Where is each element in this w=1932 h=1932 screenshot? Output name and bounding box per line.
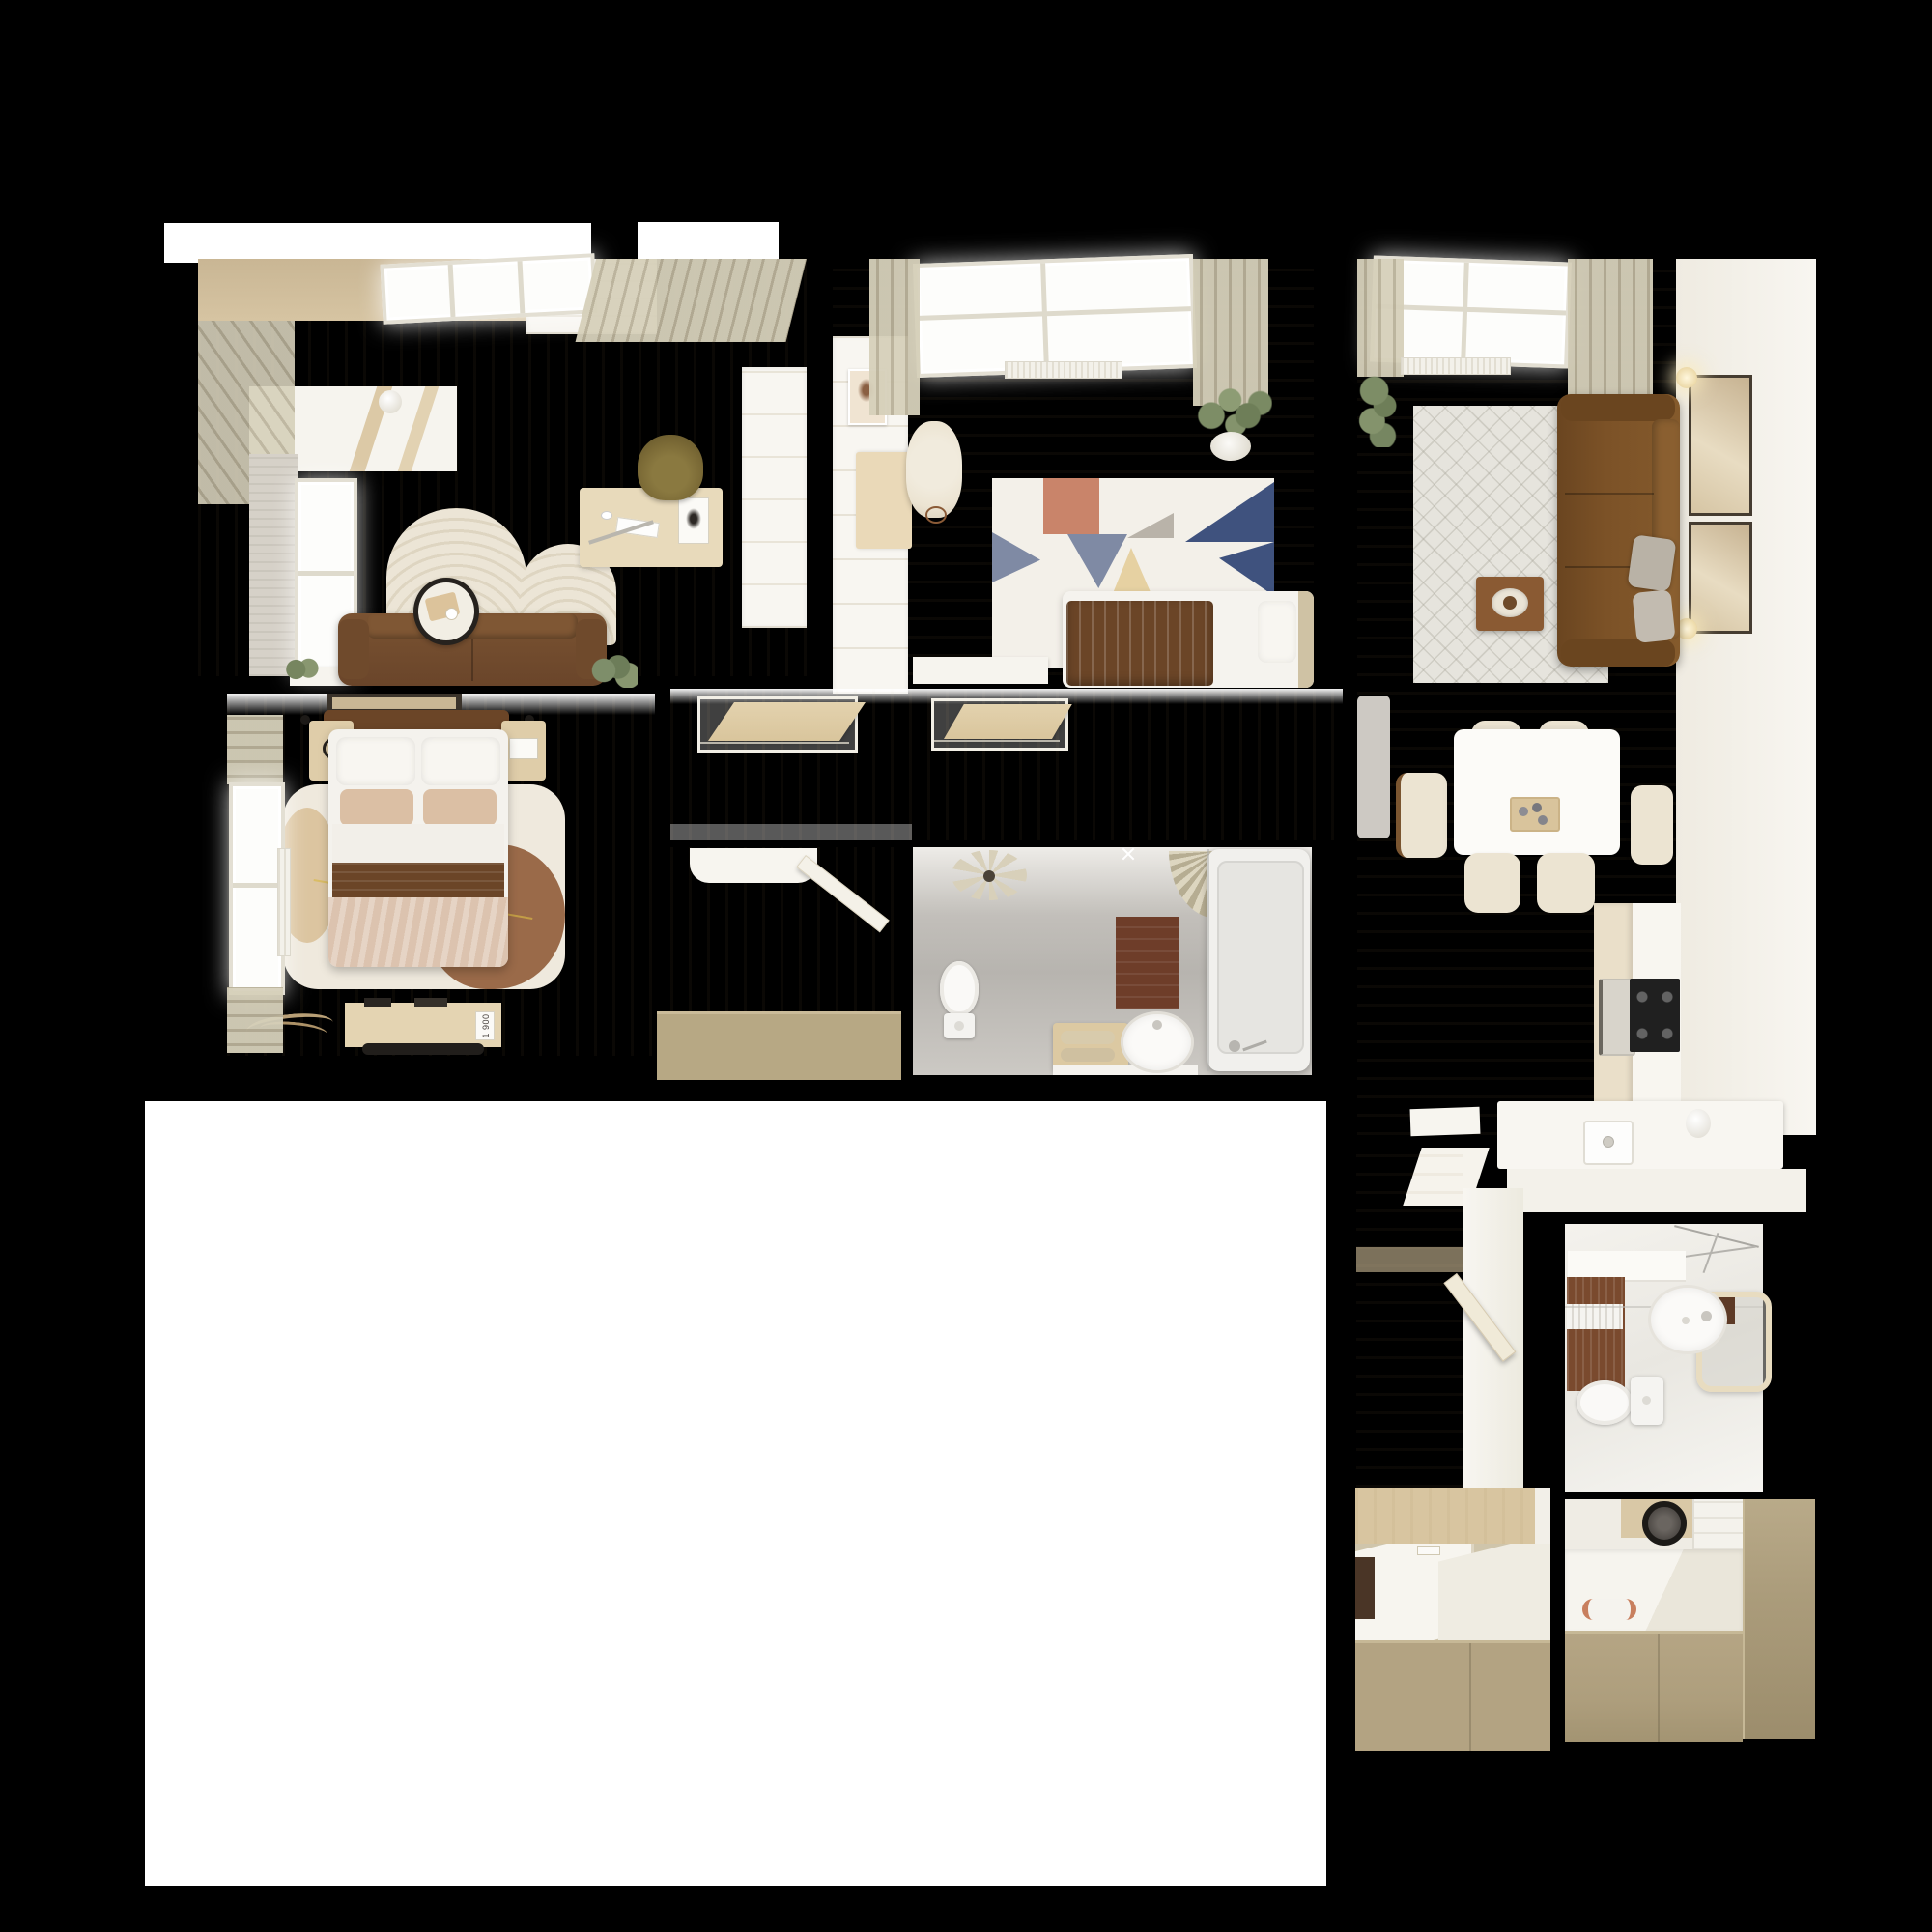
window-mullion (448, 265, 456, 317)
dining-chair-left (1396, 773, 1447, 858)
bench-item (414, 998, 447, 1007)
shower-sketch-line (1681, 1246, 1756, 1259)
living-side-table (1476, 577, 1544, 631)
chair-base (925, 506, 947, 524)
tray-cup (1532, 803, 1542, 812)
bath-brown-mat (1116, 917, 1179, 1009)
bath-brown-panel (1567, 1277, 1625, 1391)
bench-card: 1 900 (475, 1011, 495, 1040)
office-coffee-table (413, 578, 479, 645)
laundry-cabinet-white (1692, 1499, 1745, 1549)
entry-khaki-base (1355, 1640, 1550, 1751)
room-entry-wardrobe (1355, 1488, 1550, 1748)
toilet-bowl (940, 961, 979, 1015)
kitchen-floor-band (1507, 1169, 1806, 1212)
office-wall-texture (249, 454, 298, 676)
peninsula-kettle (1686, 1109, 1711, 1138)
office-sideboard (742, 367, 807, 628)
sink-faucet (1603, 1136, 1614, 1148)
toilet-button (1642, 1396, 1651, 1405)
laundry-khaki-column (1743, 1499, 1815, 1739)
wall-picture-top (1689, 375, 1752, 516)
sofa-pillow (1627, 534, 1676, 592)
living-sofa (1557, 394, 1680, 667)
office-plant-2 (283, 657, 320, 682)
sofa-armrest (1561, 639, 1675, 667)
bathtub-faucet (1229, 1040, 1240, 1052)
tray-cup (1538, 815, 1548, 825)
office-curtain-top (576, 259, 807, 342)
bed-duvet (328, 897, 508, 967)
wall-picture-bottom (1689, 522, 1752, 634)
wall-lamp-top (1676, 367, 1697, 388)
hall-white-ledge (1410, 1107, 1481, 1136)
kitchen-cooktop (1630, 979, 1680, 1052)
living-radiator (1401, 357, 1511, 375)
bedroom-curtain-top (227, 715, 283, 784)
dining-chair-bottom-right (1537, 853, 1595, 913)
kids-console (913, 657, 1048, 684)
office-plant (589, 653, 638, 688)
sofa-seat-split (471, 639, 473, 681)
window-mullion (298, 571, 354, 576)
peninsula-sink (1583, 1121, 1634, 1165)
logo-strip-right (638, 222, 779, 259)
washer-frame (1621, 1499, 1692, 1538)
ceiling-beam (398, 386, 440, 471)
bed-pillow-beige (423, 789, 497, 826)
bed-bench: 1 900 (345, 1003, 501, 1047)
living-curtain-right (1568, 259, 1653, 406)
light-center (983, 870, 995, 882)
kids-desk (856, 452, 912, 549)
side-table-decor (1503, 596, 1517, 610)
toilet-bowl (1577, 1380, 1633, 1425)
door-leaf-wood (944, 704, 1072, 739)
door-rail (700, 742, 849, 744)
towel-roll (1061, 1031, 1115, 1044)
rug-gray-triangle (1127, 513, 1174, 538)
master-bed (328, 729, 508, 967)
entry-wall-sliver (1535, 1488, 1550, 1544)
dining-chair-right (1631, 785, 1673, 865)
washer-drum (1642, 1501, 1687, 1546)
frame-inner (332, 697, 456, 709)
hall-open-door-leaf (796, 855, 890, 932)
room-kids-bedroom (833, 259, 1314, 694)
towel-roll (1061, 1048, 1115, 1062)
room-office-lounge (198, 259, 807, 676)
laundry-khaki-base (1565, 1631, 1743, 1742)
dining-chair-bottom-left (1464, 853, 1520, 913)
desk-art-card (678, 497, 709, 544)
kids-curtain-left (869, 259, 920, 415)
vanity-sink (1121, 1011, 1194, 1073)
hall-door-2 (931, 698, 1068, 751)
sink-faucet (1152, 1020, 1162, 1030)
window-mullion (919, 306, 1191, 321)
floor-plan-render: 1 900 (0, 0, 1932, 1932)
bed-brown-band (332, 863, 504, 899)
room-hallway-lower (670, 847, 901, 1077)
kids-bed (1063, 591, 1314, 688)
kids-headboard (1298, 591, 1314, 688)
window-mullion (1376, 304, 1566, 316)
ceiling-ball-lamp (379, 390, 402, 413)
kids-skylight-window (913, 254, 1197, 378)
cabinet-seam (1469, 1643, 1471, 1751)
nightstand-book (509, 738, 538, 759)
rug-terracotta-square (1043, 478, 1099, 534)
dining-table (1454, 729, 1620, 855)
room-entry-corridor (1356, 1146, 1463, 1488)
room-hallway (670, 689, 1343, 840)
sofa-armrest (1561, 394, 1675, 421)
bedroom-curtain-bottom (227, 987, 283, 1053)
room-living-dining-kitchen (1357, 259, 1816, 1135)
plant-pot (1210, 432, 1251, 461)
office-desk (580, 488, 723, 567)
rug-navy-triangle-2 (1219, 542, 1274, 596)
desk-mouse (601, 511, 612, 520)
rug-navy-triangle (1185, 482, 1274, 542)
towel-table (1053, 1023, 1128, 1071)
corridor-light-band (1356, 1247, 1463, 1272)
kids-blanket (1066, 601, 1213, 686)
sofa-pillow (1632, 589, 1675, 643)
entry-bench-dark (1355, 1557, 1375, 1619)
kids-plant (1191, 382, 1272, 465)
office-desk-chair (638, 435, 703, 500)
window-mullion (518, 261, 526, 313)
hall-bottom-highlight (670, 824, 912, 840)
bed-sheet (332, 824, 504, 865)
art-card-blob (686, 508, 701, 529)
room-master-bedroom: 1 900 (227, 694, 655, 1056)
room-laundry-storage (1565, 1499, 1813, 1739)
sofa-cushion-split (1565, 493, 1654, 495)
bench-item (364, 998, 391, 1007)
glass-screen (1207, 849, 1209, 1071)
cabinet-seam (1658, 1634, 1660, 1742)
office-skylight-window (381, 253, 598, 325)
towel-roll-terracotta (1582, 1599, 1636, 1620)
room-main-bathroom (913, 847, 1312, 1075)
sink-faucet (1701, 1311, 1712, 1321)
sliding-wardrobe (1355, 1544, 1550, 1640)
room-small-bathroom (1565, 1224, 1763, 1492)
bed-pillow-beige (340, 789, 413, 826)
blank-white-area (145, 1101, 1326, 1886)
bed-pillow-white (421, 737, 500, 785)
window-mullion (233, 883, 281, 888)
bed-pillow-white (336, 737, 415, 785)
bench-card-label: 1 900 (481, 1013, 491, 1037)
hall-door-1 (697, 696, 858, 753)
hall-runner-gray (1357, 696, 1390, 838)
bath2-toilet (1577, 1377, 1669, 1429)
tray-cup (1519, 807, 1528, 816)
kids-desk-chair (906, 421, 962, 518)
toilet-button (954, 1021, 964, 1031)
entry-khaki-mat (657, 1011, 901, 1080)
toilet (940, 961, 979, 1040)
dining-tray (1510, 797, 1560, 832)
wardrobe-door-panel (1438, 1544, 1550, 1640)
bench-tray (362, 1043, 484, 1055)
sofa-armrest (338, 619, 369, 679)
coffee-cup (445, 608, 458, 620)
sink-drain (1682, 1317, 1690, 1324)
bath-ceiling-light (952, 850, 1027, 900)
living-plant (1357, 372, 1400, 447)
living-curtain-left (1357, 259, 1404, 377)
bathtub-basin (1217, 861, 1304, 1054)
rug-slate-triangle (992, 532, 1040, 582)
bathtub (1207, 849, 1310, 1071)
entry-wood-wall (1355, 1488, 1535, 1544)
kids-radiator (1005, 361, 1122, 379)
bedroom-radiator (277, 848, 291, 956)
door-leaf-wood (708, 702, 866, 741)
kitchen-peninsula (1497, 1101, 1783, 1169)
wardrobe-handle (1417, 1546, 1440, 1555)
door-rail (934, 740, 1060, 742)
kids-pillow (1258, 601, 1296, 663)
bath2-sink (1648, 1285, 1727, 1354)
